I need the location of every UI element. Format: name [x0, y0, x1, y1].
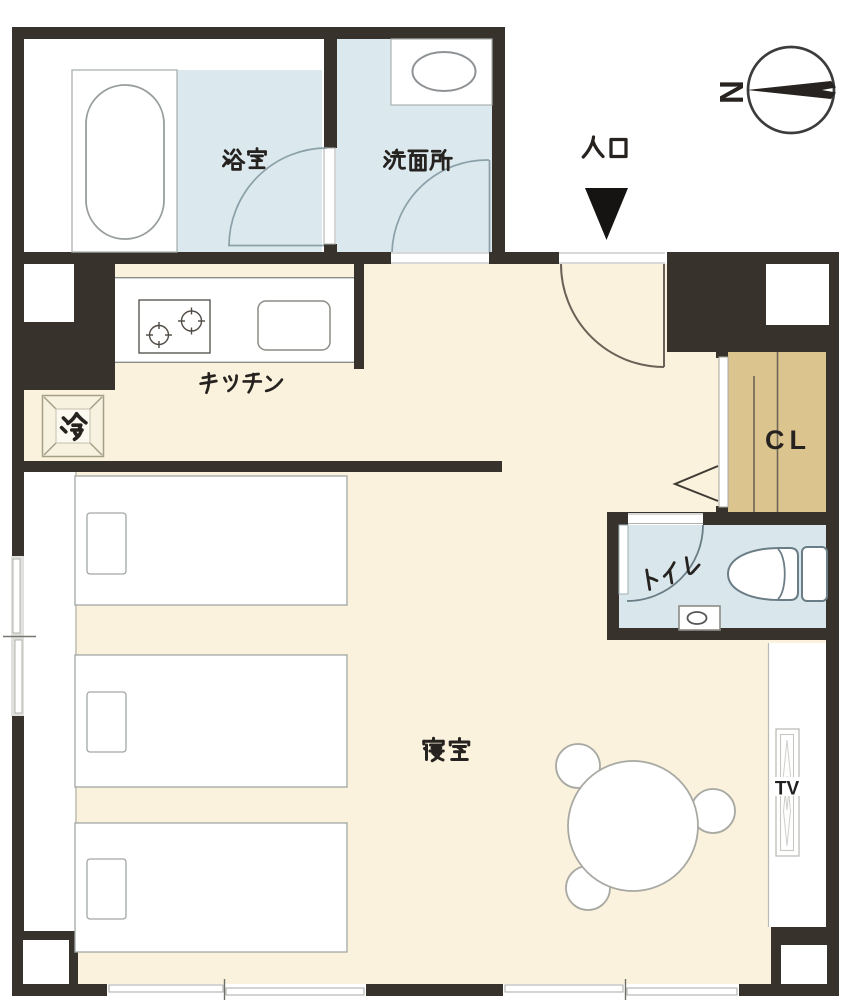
svg-text:TV: TV [775, 779, 800, 800]
svg-text:CL: CL [765, 425, 811, 455]
svg-text:N: N [713, 80, 750, 104]
